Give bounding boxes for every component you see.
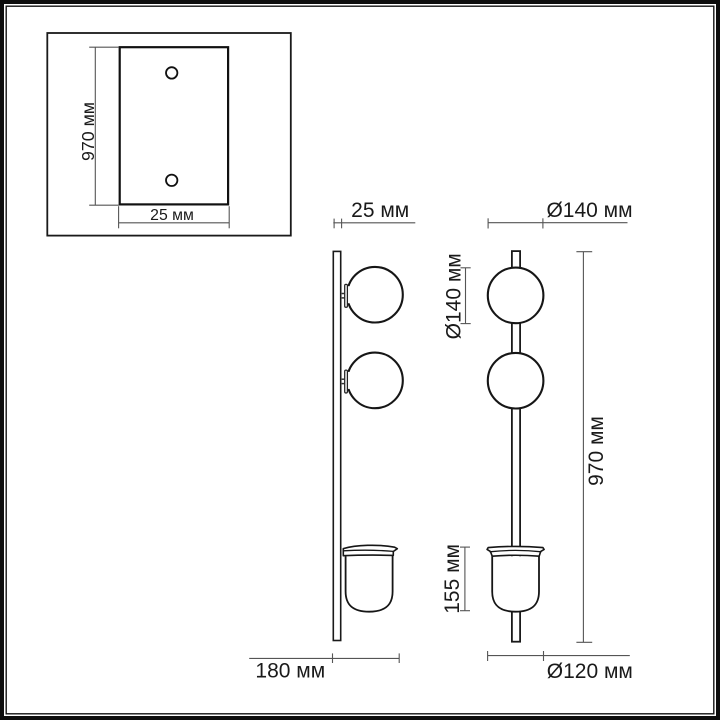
svg-text:155 мм: 155 мм xyxy=(441,544,464,614)
svg-text:25 мм: 25 мм xyxy=(150,207,194,224)
svg-text:Ø140 мм: Ø140 мм xyxy=(546,199,632,222)
svg-text:Ø120 мм: Ø120 мм xyxy=(547,660,633,683)
svg-text:970 мм: 970 мм xyxy=(585,416,608,486)
svg-text:970 мм: 970 мм xyxy=(78,102,98,161)
svg-text:Ø140 мм: Ø140 мм xyxy=(442,253,465,339)
svg-text:180 мм: 180 мм xyxy=(255,659,325,682)
svg-text:25 мм: 25 мм xyxy=(351,199,409,222)
